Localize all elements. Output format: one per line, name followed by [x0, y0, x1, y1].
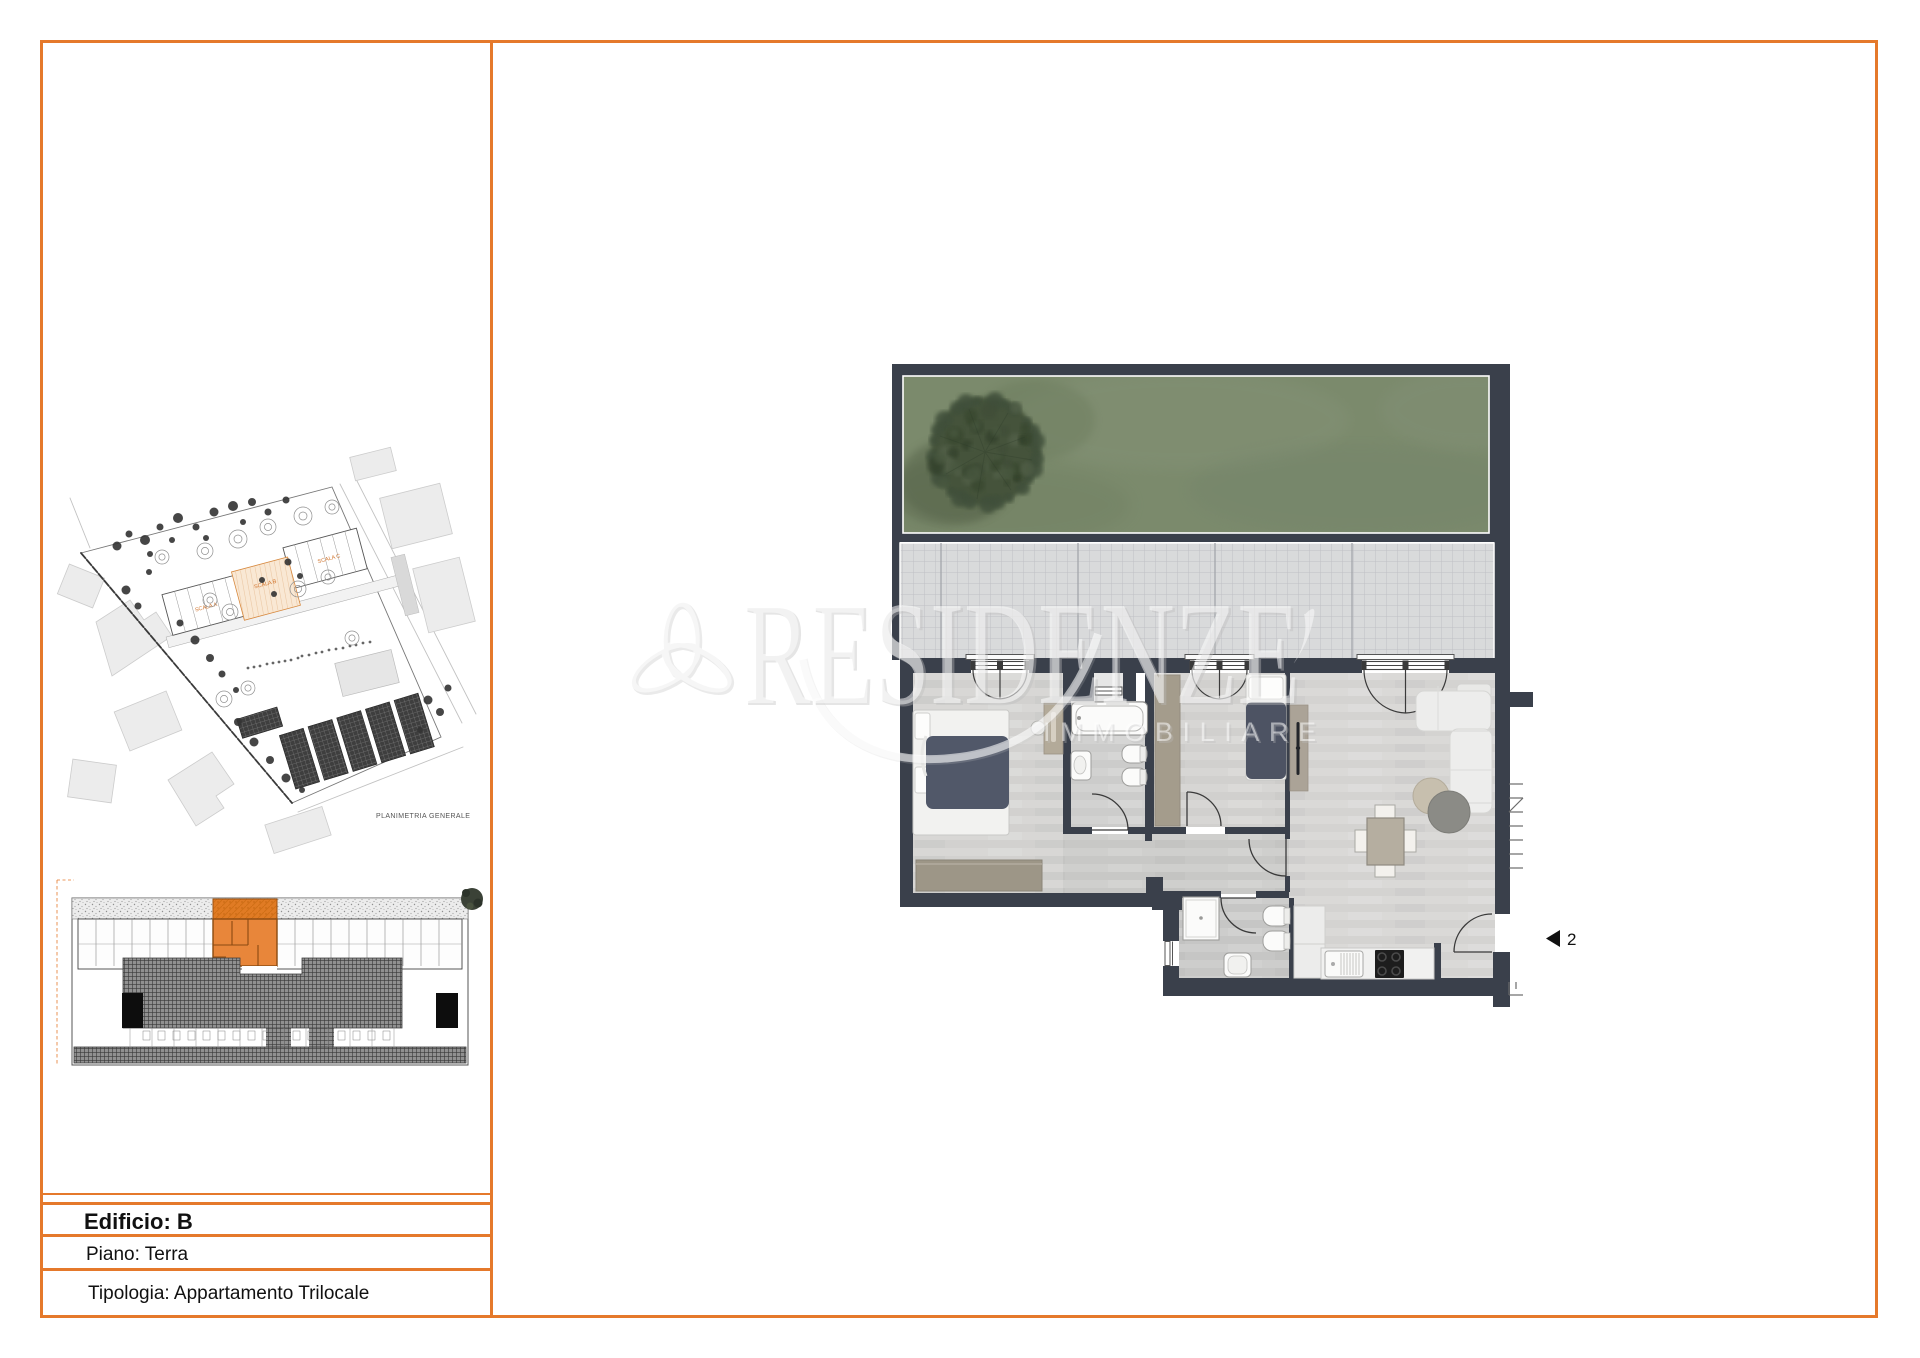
svg-text:PLANIMETRIA GENERALE: PLANIMETRIA GENERALE — [376, 813, 470, 820]
svg-text:RESIDENZE: RESIDENZE — [742, 572, 1300, 736]
svg-text:IMMOBILIARE: IMMOBILIARE — [1043, 717, 1326, 747]
svg-text:2: 2 — [1567, 930, 1576, 949]
